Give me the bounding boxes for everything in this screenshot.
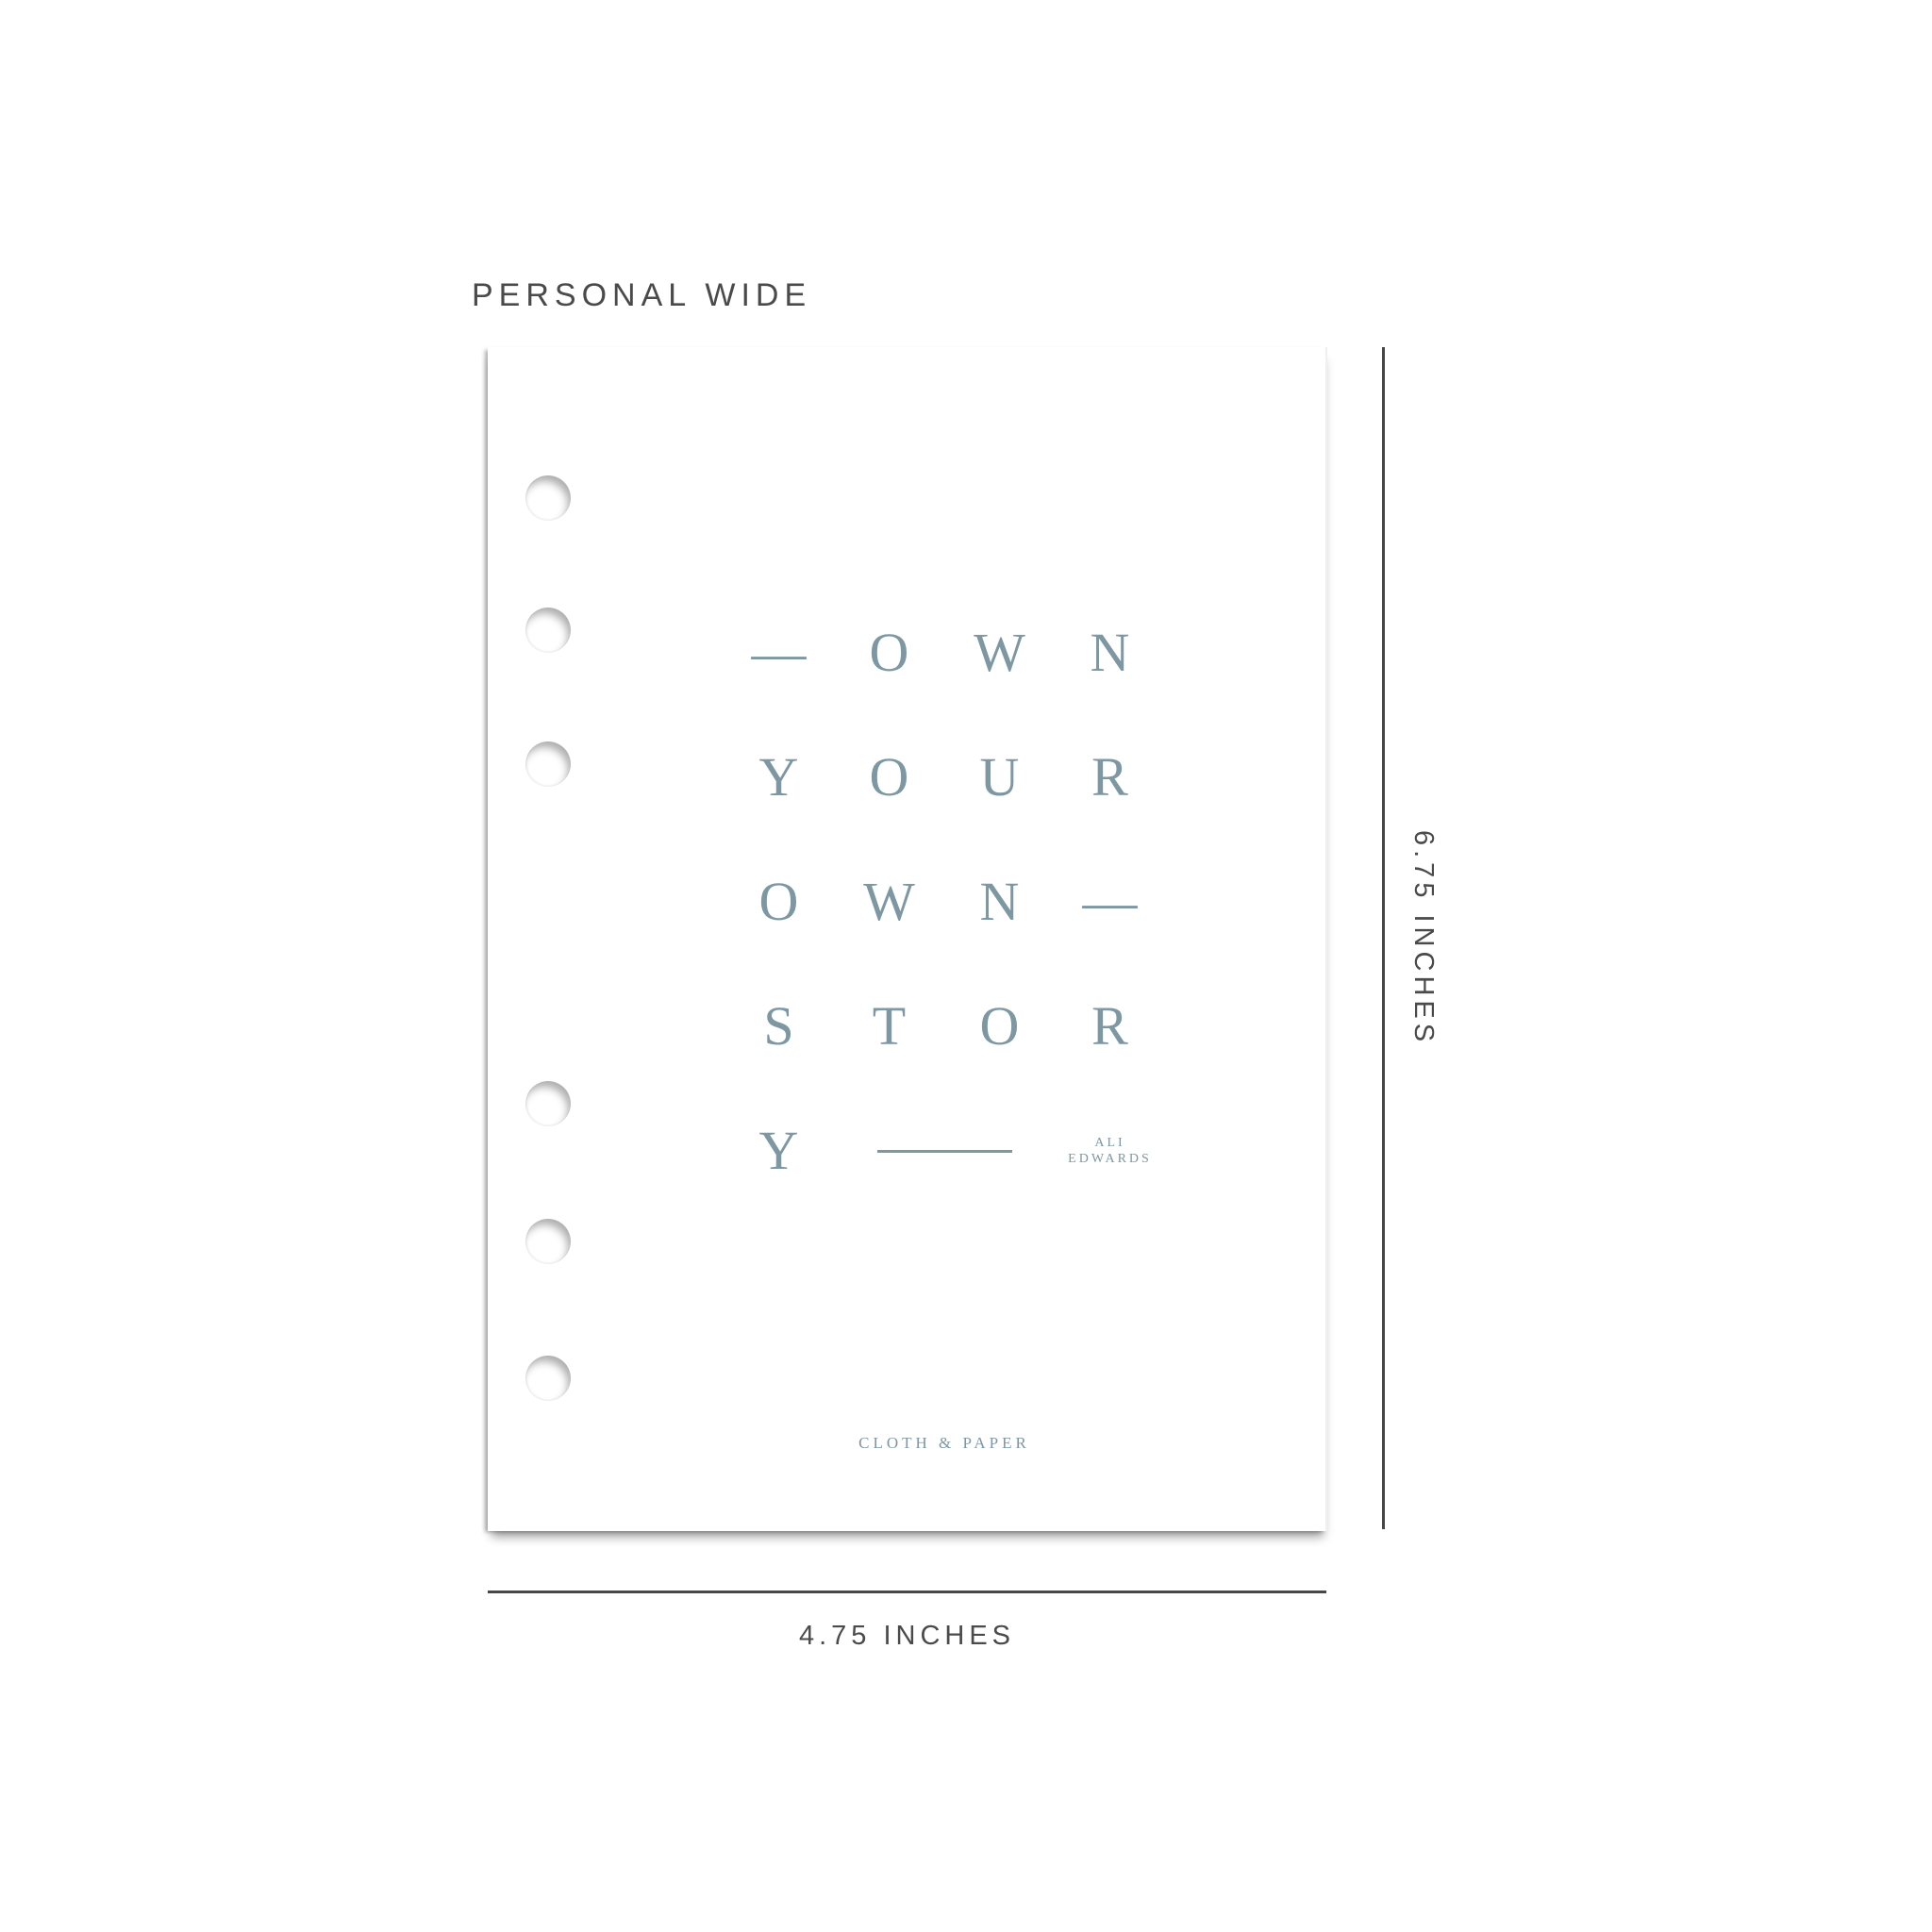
attribution-line-1: ALI [1094, 1136, 1124, 1150]
quote-grid: — O W N Y O U R O W N — S T O R Y [724, 591, 1165, 1213]
punch-hole [525, 1219, 571, 1264]
quote-letter: O [834, 625, 944, 680]
quote-divider-wrap [834, 1150, 1055, 1153]
quote-letter: R [1055, 999, 1165, 1054]
quote-letter: S [724, 999, 834, 1054]
quote-divider-line [877, 1150, 1012, 1153]
attribution-line-2: EDWARDS [1068, 1152, 1152, 1166]
quote-attribution: ALI EDWARDS [1055, 1135, 1165, 1167]
quote-row: O W N — [724, 840, 1165, 964]
width-dimension-line [488, 1591, 1326, 1593]
quote-row: Y O U R [724, 715, 1165, 840]
punch-hole [525, 608, 571, 653]
quote-letter: U [944, 750, 1055, 805]
quote-row: — O W N [724, 591, 1165, 715]
quote-dash: — [724, 625, 834, 680]
quote-dash: — [1055, 874, 1165, 929]
width-dimension-label: 4.75 INCHES [488, 1621, 1326, 1652]
quote-letter: Y [724, 750, 834, 805]
quote-letter: W [944, 625, 1055, 680]
quote-letter: Y [724, 1124, 834, 1178]
quote-letter: O [834, 750, 944, 805]
planner-page: — O W N Y O U R O W N — S T O R Y [488, 347, 1327, 1531]
punch-hole [525, 475, 571, 521]
height-dimension-label: 6.75 INCHES [1407, 830, 1439, 1046]
quote-letter: R [1055, 750, 1165, 805]
quote-letter: W [834, 874, 944, 929]
quote-letter: O [944, 999, 1055, 1054]
punch-hole [525, 1356, 571, 1401]
brand-label: CLOTH & PAPER [724, 1434, 1165, 1453]
punch-hole [525, 1081, 571, 1126]
quote-letter: T [834, 999, 944, 1054]
quote-letter: N [944, 874, 1055, 929]
size-label: PERSONAL WIDE [472, 277, 811, 314]
punch-hole [525, 741, 571, 787]
quote-letter: O [724, 874, 834, 929]
height-dimension-line [1382, 347, 1385, 1529]
quote-row: S T O R [724, 964, 1165, 1089]
quote-row: Y ALI EDWARDS [724, 1089, 1165, 1213]
quote-letter: N [1055, 625, 1165, 680]
